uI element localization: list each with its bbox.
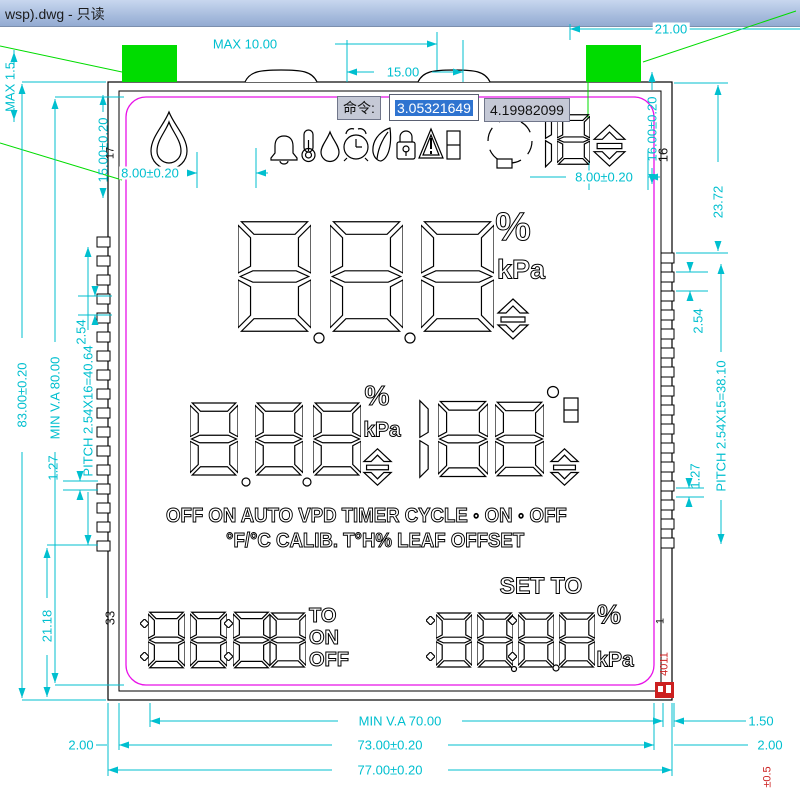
alarm-clock-icon <box>344 129 368 161</box>
digit-bl-2 <box>190 612 227 668</box>
pin-number-bottom-left: 33 <box>104 611 117 625</box>
colon-dot <box>426 652 435 661</box>
dim-minva80: MIN V.A 80.00 <box>49 357 62 440</box>
mode-line-1: OFF ON AUTO VPD TIMER CYCLE ◦ ON ◦ OFF <box>166 506 567 526</box>
dim-150: 1.50 <box>748 715 773 728</box>
command-value-secondary: 4.19982099 <box>490 102 564 118</box>
mode-line-2: °F/°C CALIB. T°H% LEAF OFFSET <box>226 531 524 551</box>
pin-number-top-right: 16 <box>657 148 670 162</box>
dim-2118: 21.18 <box>41 610 54 643</box>
digit-temp-1 <box>420 401 428 478</box>
pin-number-top-left: 17 <box>106 147 117 159</box>
dim-15: 15.00 <box>387 66 420 79</box>
droplet-icon <box>151 112 187 169</box>
digit-mid-1 <box>190 403 238 475</box>
digit-br-1 <box>436 613 472 667</box>
percent-mid: % <box>365 382 390 410</box>
updown-arrow-icon <box>364 449 391 485</box>
dim-max10: MAX 10.00 <box>213 38 277 51</box>
dim-minva70: MIN V.A 70.00 <box>357 715 444 728</box>
dim-left-8: 8.00±0.20 <box>119 167 181 180</box>
cad-viewer-window: wsp).dwg - 只读 <box>0 0 800 800</box>
command-label: 命令: <box>343 98 375 118</box>
updown-arrow-icon <box>551 449 578 485</box>
percent-main: % <box>495 207 531 247</box>
dim-127-left: 1.27 <box>47 455 60 480</box>
dim-73: 73.00±0.20 <box>358 739 423 752</box>
digit-temp-2 <box>438 402 488 477</box>
digit-br-2 <box>477 613 513 667</box>
glass-bump-left <box>245 70 317 82</box>
decimal-point <box>405 333 415 343</box>
command-input[interactable]: 3.05321649 <box>389 94 479 121</box>
dimension-lines <box>14 24 800 776</box>
colon-dot <box>140 652 149 661</box>
colon-dot <box>140 619 149 628</box>
bell-icon <box>271 136 297 164</box>
dim-21: 21.00 <box>653 23 690 36</box>
digit-main-2 <box>330 222 403 332</box>
fan-cycle-icon <box>488 119 532 168</box>
pin-number-bottom-right: 1 <box>656 618 667 624</box>
digit-topright-8 <box>557 115 590 165</box>
dim-pitch-left: PITCH 2.54X16=40.64 <box>82 345 95 476</box>
temp-unit-block-icon <box>564 398 578 422</box>
leaf-icon <box>373 128 391 161</box>
dim-127-right: 1.27 <box>689 463 702 488</box>
degree-icon <box>548 387 559 398</box>
stamp-tolerance: ±0.5 <box>763 766 774 787</box>
warning-icon <box>419 129 443 158</box>
pads-left <box>97 237 110 551</box>
dim-254-left: 2.54 <box>75 319 88 344</box>
off-label: OFF <box>309 650 349 670</box>
decimal-point <box>553 665 559 671</box>
command-value-selected[interactable]: 3.05321649 <box>395 100 473 116</box>
qa-stamp <box>655 682 674 698</box>
decimal-point <box>303 478 311 486</box>
on-label: ON <box>309 628 339 648</box>
percent-set: % <box>597 602 621 629</box>
digit-main-3 <box>421 222 494 332</box>
dim-2372: 23.72 <box>712 186 725 219</box>
updown-arrow-icon <box>594 125 625 166</box>
digit-main-1 <box>238 222 311 332</box>
digit-mid-3 <box>313 403 361 475</box>
dim-83: 83.00±0.20 <box>16 363 29 428</box>
digit-br-3 <box>518 613 554 667</box>
digit-bl-1 <box>148 612 185 668</box>
dim-right-8: 8.00±0.20 <box>573 171 635 184</box>
lock-icon <box>397 131 415 159</box>
command-label-box: 命令: <box>337 96 381 120</box>
dim-200-right: 2.00 <box>757 739 782 752</box>
thermometer-icon <box>302 130 315 162</box>
dim-77: 77.00±0.20 <box>358 764 423 777</box>
dim-254-right: 2.54 <box>692 308 705 333</box>
decimal-point <box>512 667 517 672</box>
digit-bl-3 <box>233 612 270 668</box>
decimal-point <box>314 333 324 343</box>
dim-pitch-right: PITCH 2.54X15=38.10 <box>715 360 728 491</box>
stamp-code: 4011 <box>660 652 671 676</box>
set-to-label: SET TO <box>500 575 583 598</box>
tab-right <box>586 45 641 82</box>
decimal-point <box>242 478 250 486</box>
water-drop-icon <box>321 132 339 162</box>
digit-temp-3 <box>495 402 544 476</box>
dim-200-left: 2.00 <box>68 739 93 752</box>
to-label: TO <box>309 606 336 626</box>
kpa-main: kPa <box>497 257 545 284</box>
tab-left <box>122 45 177 82</box>
digit-mid-2 <box>255 403 303 475</box>
battery-icon <box>447 131 460 159</box>
kpa-set: kPa <box>596 650 633 671</box>
digit-br-4 <box>559 613 595 667</box>
kpa-mid: kPa <box>363 420 400 441</box>
digit-bl-4 <box>270 613 306 667</box>
dim-max15: MAX 1.5 <box>4 62 17 112</box>
command-input-secondary[interactable]: 4.19982099 <box>484 98 570 122</box>
updown-arrow-icon <box>498 299 528 339</box>
colon-dot <box>426 616 435 625</box>
